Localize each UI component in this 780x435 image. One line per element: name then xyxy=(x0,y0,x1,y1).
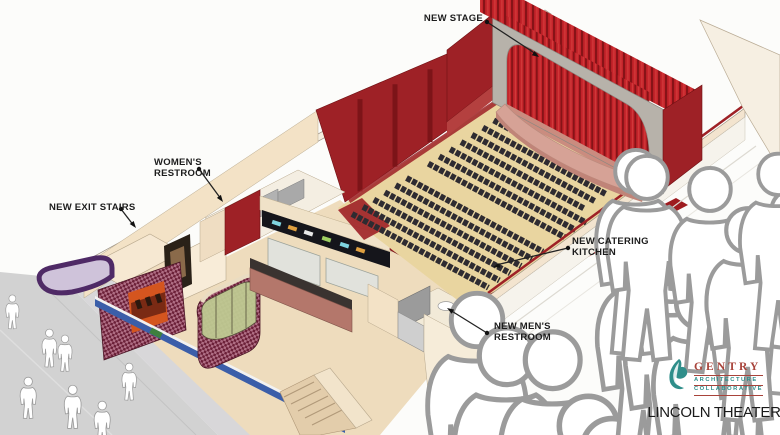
firm-tagline-2: COLLABORATIVE xyxy=(694,387,763,393)
gentry-logo-icon xyxy=(667,358,691,392)
label-new-exit-stairs: NEW EXIT STAIRS xyxy=(49,202,135,213)
label-new-catering-kitchen: NEW CATERING KITCHEN xyxy=(572,236,649,258)
architect-logo: GENTRY ARCHITECTURE COLLABORATIVE xyxy=(642,358,780,396)
firm-name: GENTRY xyxy=(694,362,763,374)
label-new-mens-restroom: NEW MEN'S RESTROOM xyxy=(494,321,551,343)
label-new-stage: NEW STAGE xyxy=(424,13,483,24)
project-title: LINCOLN THEATER xyxy=(640,404,780,421)
architectural-rendering: NEW STAGE WOMEN'S RESTROOM NEW EXIT STAI… xyxy=(0,0,780,435)
label-new-stage-text: NEW STAGE xyxy=(424,13,483,24)
firm-tagline-1: ARCHITECTURE xyxy=(694,378,763,384)
label-womens-restroom: WOMEN'S RESTROOM xyxy=(154,157,211,179)
